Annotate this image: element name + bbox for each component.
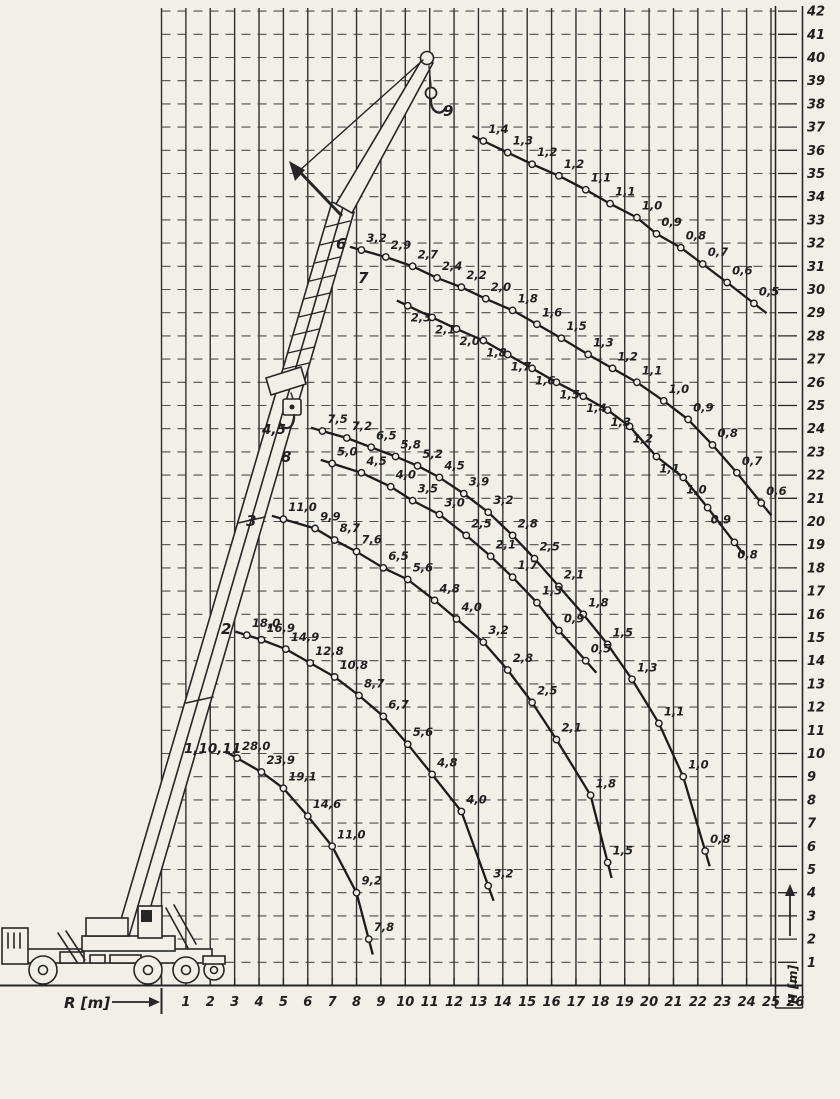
point-load-label: 4,0 — [460, 600, 481, 614]
x-axis-arrow-icon — [112, 988, 162, 1014]
point-load-label: 1,5 — [613, 844, 633, 858]
data-point — [661, 398, 667, 404]
data-point — [329, 460, 335, 466]
point-load-label: 2,1 — [561, 721, 581, 735]
point-load-label: 28,0 — [242, 739, 270, 753]
x-tick-label: 4 — [253, 995, 263, 1010]
data-point — [607, 200, 613, 206]
y-tick-label: 11 — [807, 724, 825, 739]
data-point — [436, 474, 442, 480]
y-tick-label: 33 — [807, 213, 825, 228]
data-point — [556, 627, 562, 633]
data-point — [585, 351, 591, 357]
data-point — [629, 676, 635, 682]
point-load-label: 1,2 — [618, 349, 638, 363]
point-load-label: 2,0 — [459, 334, 479, 348]
data-point — [305, 813, 311, 819]
curve-id-label: 6 — [336, 235, 346, 253]
cab-window — [141, 910, 152, 922]
data-point — [751, 300, 757, 306]
curve-line — [321, 460, 597, 673]
x-tick-label: 12 — [445, 995, 463, 1010]
point-load-label: 5,2 — [422, 447, 442, 461]
y-tick-label: 6 — [807, 840, 816, 855]
point-load-label: 1,1 — [659, 462, 679, 476]
point-load-label: 11,0 — [337, 827, 365, 841]
data-point — [529, 699, 535, 705]
data-point — [280, 785, 286, 791]
x-tick-label: 16 — [543, 995, 561, 1010]
point-load-label: 3,2 — [366, 231, 386, 245]
point-load-label: 2,5 — [540, 540, 560, 554]
point-load-label: 8,7 — [364, 677, 384, 691]
y-tick-label: 13 — [807, 677, 825, 692]
x-tick-label: 1 — [181, 995, 190, 1010]
engine-housing — [86, 918, 128, 936]
x-tick-label: 13 — [469, 995, 487, 1010]
point-load-label: 2,9 — [391, 238, 411, 252]
point-load-label: 14,9 — [291, 630, 319, 644]
data-point — [529, 161, 535, 167]
point-load-label: 4,8 — [436, 755, 457, 769]
y-axis-label: H [m] — [785, 964, 800, 1004]
y-tick-label: 12 — [807, 701, 825, 716]
point-load-label: 1,6 — [535, 373, 555, 387]
data-point — [556, 173, 562, 179]
data-point — [331, 674, 337, 680]
y-tick-label: 14 — [807, 654, 825, 669]
curve-id-label: 4,5 — [261, 422, 286, 438]
point-load-label: 0,8 — [737, 547, 757, 561]
point-load-label: 1,8 — [588, 595, 608, 609]
point-load-label: 2,0 — [491, 280, 511, 294]
x-tick-label: 7 — [328, 995, 338, 1010]
point-load-label: 0,8 — [717, 426, 737, 440]
data-point — [387, 484, 393, 490]
data-point — [436, 511, 442, 517]
curve-id-label: 1,10,11 — [184, 741, 241, 757]
crane-truck — [2, 905, 225, 984]
point-load-label: 0,9 — [661, 215, 681, 229]
data-point — [609, 365, 615, 371]
point-load-label: 1,2 — [537, 145, 557, 159]
point-load-label: 9,2 — [362, 874, 382, 888]
point-load-label: 3,2 — [493, 493, 513, 507]
point-load-label: 11,0 — [288, 500, 316, 514]
point-load-label: 0,9 — [711, 513, 731, 527]
y-tick-label: 38 — [807, 97, 825, 112]
crane-load-chart: 1234567891011121314151617181920212223242… — [0, 0, 840, 1094]
point-load-label: 0,7 — [742, 454, 762, 468]
x-tick-label: 11 — [421, 995, 439, 1010]
x-tick-label: 6 — [303, 995, 312, 1010]
data-point — [504, 667, 510, 673]
data-point — [534, 600, 540, 606]
data-point — [366, 936, 372, 942]
y-axis-arrow-icon — [785, 884, 795, 936]
point-load-label: 7,5 — [327, 412, 347, 426]
point-load-label: 1,8 — [486, 346, 506, 360]
point-load-label: 7,2 — [352, 419, 372, 433]
data-point — [483, 296, 489, 302]
data-point — [358, 247, 364, 253]
point-load-label: 0,9 — [693, 400, 713, 414]
y-tick-label: 34 — [807, 190, 825, 205]
data-point — [405, 303, 411, 309]
data-point — [409, 497, 415, 503]
data-point — [724, 279, 730, 285]
data-point — [504, 149, 510, 155]
data-point — [356, 692, 362, 698]
data-point — [734, 470, 740, 476]
x-tick-label: 9 — [376, 995, 385, 1010]
data-point — [485, 509, 491, 515]
point-load-label: 6,5 — [376, 428, 396, 442]
point-load-label: 1,3 — [637, 660, 657, 674]
data-point — [368, 444, 374, 450]
curve-id-label: 9 — [443, 102, 453, 120]
data-point — [704, 504, 710, 510]
data-point — [307, 660, 313, 666]
curve-id-label: 7 — [358, 269, 369, 287]
point-load-label: 1,4 — [488, 122, 508, 136]
y-tick-label: 39 — [807, 74, 825, 89]
point-load-label: 1,1 — [664, 704, 684, 718]
point-load-label: 3,2 — [488, 623, 508, 637]
data-point — [480, 138, 486, 144]
y-tick-label: 7 — [807, 817, 817, 832]
x-tick-label: 5 — [279, 995, 288, 1010]
y-tick-label: 32 — [807, 237, 825, 252]
point-load-label: 1,7 — [511, 359, 531, 373]
x-tick-label: 18 — [591, 995, 609, 1010]
point-load-label: 0,5 — [759, 284, 779, 298]
capacity-curve-1,10,11: 28,023,919,114,611,09,27,81,10,11 — [184, 739, 394, 954]
y-tick-label: 9 — [807, 770, 816, 785]
data-point — [680, 774, 686, 780]
point-load-label: 4,0 — [465, 793, 486, 807]
y-tick-label: 30 — [807, 283, 825, 298]
data-point — [509, 574, 515, 580]
data-point — [583, 187, 589, 193]
point-load-label: 3,9 — [469, 475, 489, 489]
y-tick-label: 18 — [807, 561, 825, 576]
point-load-label: 8,7 — [340, 521, 360, 535]
curve-line — [397, 301, 744, 555]
point-load-label: 14,6 — [313, 797, 341, 811]
point-load-label: 0,7 — [708, 245, 728, 259]
y-tick-label: 3 — [807, 909, 816, 924]
point-load-label: 2,3 — [411, 311, 431, 325]
jib-tip-pulley — [421, 52, 434, 65]
data-point — [458, 808, 464, 814]
point-load-label: 1,3 — [593, 335, 613, 349]
capacity-curve-8: 5,04,54,03,53,02,52,11,71,30,90,58 — [281, 445, 611, 673]
data-point — [258, 769, 264, 775]
y-tick-label: 31 — [807, 260, 825, 275]
data-point — [353, 548, 359, 554]
y-tick-label: 25 — [807, 399, 825, 414]
crane-drawing — [2, 52, 446, 985]
axes: 1234567891011121314151617181920212223242… — [0, 5, 826, 1010]
curve-id-label: 3 — [246, 512, 256, 530]
data-point — [558, 335, 564, 341]
point-load-label: 0,5 — [591, 642, 611, 656]
point-load-label: 5,6 — [413, 725, 433, 739]
data-point — [244, 632, 250, 638]
x-tick-label: 17 — [567, 995, 586, 1010]
data-point — [509, 307, 515, 313]
crane-jib — [289, 52, 434, 216]
data-point — [319, 428, 325, 434]
point-load-label: 4,8 — [439, 581, 460, 595]
data-point — [709, 442, 715, 448]
capacity-curve-3: 11,09,98,77,66,55,64,84,03,22,82,52,11,8… — [246, 500, 633, 878]
x-tick-label: 20 — [640, 995, 658, 1010]
y-tick-label: 23 — [807, 445, 825, 460]
y-tick-label: 1 — [807, 956, 816, 971]
point-load-label: 2,5 — [537, 683, 557, 697]
data-point — [344, 435, 350, 441]
y-tick-label: 21 — [807, 492, 825, 507]
point-load-label: 10,8 — [340, 658, 368, 672]
y-tick-label: 15 — [807, 631, 825, 646]
y-tick-label: 22 — [807, 469, 825, 484]
y-tick-label: 8 — [807, 793, 816, 808]
point-load-label: 1,2 — [564, 157, 584, 171]
jib-arrow-icon — [289, 161, 305, 181]
point-load-label: 0,6 — [732, 264, 752, 278]
capacity-curve-2: 18,016,914,912,810,88,76,75,64,84,03,22 — [221, 616, 514, 901]
crane-boom — [112, 202, 354, 950]
data-point — [656, 720, 662, 726]
capacity-curves: 1,41,31,21,21,11,11,00,90,80,70,60,593,2… — [184, 102, 787, 955]
x-tick-label: 15 — [518, 995, 536, 1010]
data-point — [358, 470, 364, 476]
point-load-label: 1,5 — [613, 625, 633, 639]
x-tick-label: 24 — [738, 995, 756, 1010]
y-tick-label: 36 — [807, 144, 825, 159]
data-point — [604, 859, 610, 865]
curve-line — [272, 516, 612, 878]
point-load-label: 1,3 — [611, 415, 631, 429]
data-point — [258, 637, 264, 643]
data-point — [331, 537, 337, 543]
point-load-label: 7,8 — [374, 920, 394, 934]
curve-id-label: 2 — [221, 620, 231, 638]
data-point — [392, 453, 398, 459]
point-load-label: 1,3 — [542, 584, 562, 598]
point-load-label: 1,1 — [591, 171, 611, 185]
y-tick-label: 2 — [807, 933, 816, 948]
point-load-label: 2,8 — [513, 651, 533, 665]
point-load-label: 4,5 — [443, 458, 464, 472]
data-point — [434, 275, 440, 281]
point-load-label: 0,6 — [766, 484, 786, 498]
data-point — [405, 576, 411, 582]
point-load-label: 1,8 — [518, 291, 538, 305]
point-load-label: 1,1 — [615, 185, 635, 199]
point-load-label: 0,8 — [710, 832, 730, 846]
data-point — [280, 516, 286, 522]
point-load-label: 2,2 — [466, 268, 486, 282]
y-tick-label: 40 — [806, 51, 825, 66]
y-tick-label: 37 — [807, 121, 826, 136]
x-tick-label: 2 — [206, 995, 215, 1010]
data-point — [553, 736, 559, 742]
x-axis-label: R [m] — [64, 994, 110, 1012]
data-point — [702, 848, 708, 854]
point-load-label: 1,4 — [586, 401, 606, 415]
data-point — [634, 379, 640, 385]
data-point — [431, 597, 437, 603]
point-load-label: 19,1 — [288, 769, 316, 783]
data-point — [380, 713, 386, 719]
data-point — [685, 416, 691, 422]
point-load-label: 1,3 — [513, 134, 533, 148]
data-point — [463, 532, 469, 538]
x-tick-label: 22 — [689, 995, 707, 1010]
point-load-label: 9,9 — [320, 509, 340, 523]
data-point — [758, 500, 764, 506]
data-point — [409, 263, 415, 269]
point-load-label: 3,5 — [418, 482, 438, 496]
data-point — [453, 616, 459, 622]
y-tick-label: 5 — [807, 863, 816, 878]
x-tick-label: 19 — [616, 995, 634, 1010]
x-tick-label: 8 — [352, 995, 361, 1010]
data-point — [487, 553, 493, 559]
x-tick-label: 10 — [396, 995, 414, 1010]
data-point — [583, 658, 589, 664]
data-point — [634, 214, 640, 220]
point-load-label: 2,8 — [518, 516, 538, 530]
data-point — [329, 843, 335, 849]
point-load-label: 1,5 — [559, 387, 579, 401]
x-tick-label: 21 — [664, 995, 682, 1010]
data-point — [580, 393, 586, 399]
data-point — [480, 337, 486, 343]
point-load-label: 12,8 — [315, 644, 343, 658]
point-load-label: 2,1 — [496, 537, 516, 551]
point-load-label: 6,7 — [388, 697, 408, 711]
data-point — [678, 245, 684, 251]
y-tick-label: 35 — [807, 167, 825, 182]
point-load-label: 6,5 — [388, 549, 408, 563]
data-point — [383, 254, 389, 260]
point-load-label: 1,5 — [566, 319, 586, 333]
point-load-label: 7,6 — [362, 533, 382, 547]
y-tick-label: 4 — [806, 886, 816, 901]
point-load-label: 2,1 — [435, 322, 455, 336]
y-tick-label: 24 — [807, 422, 825, 437]
y-tick-label: 19 — [807, 538, 825, 553]
y-tick-label: 28 — [807, 329, 825, 344]
point-load-label: 1,2 — [633, 431, 653, 445]
point-load-label: 1,1 — [642, 363, 662, 377]
y-tick-label: 26 — [807, 376, 825, 391]
y-tick-label: 16 — [807, 608, 825, 623]
truck-cab — [2, 928, 28, 964]
point-load-label: 1,7 — [518, 558, 538, 572]
point-load-label: 3,0 — [444, 496, 464, 510]
y-tick-label: 42 — [806, 5, 825, 20]
data-point — [587, 792, 593, 798]
point-load-label: 4,5 — [365, 454, 386, 468]
point-load-label: 3,2 — [493, 867, 513, 881]
data-point — [405, 741, 411, 747]
data-point — [312, 525, 318, 531]
y-tick-label: 27 — [807, 353, 826, 368]
data-point — [458, 284, 464, 290]
point-load-label: 23,9 — [266, 753, 294, 767]
point-load-label: 2,4 — [442, 259, 462, 273]
data-point — [429, 771, 435, 777]
x-tick-label: 3 — [230, 995, 239, 1010]
data-point — [534, 321, 540, 327]
y-tick-label: 20 — [807, 515, 825, 530]
point-load-label: 5,0 — [337, 445, 357, 459]
point-load-label: 2,7 — [418, 247, 438, 261]
point-load-label: 4,0 — [395, 468, 416, 482]
data-point — [480, 639, 486, 645]
point-load-label: 1,0 — [669, 382, 689, 396]
point-load-label: 1,6 — [542, 305, 562, 319]
data-point — [653, 453, 659, 459]
point-load-label: 1,0 — [688, 758, 708, 772]
data-point — [700, 261, 706, 267]
data-point — [653, 231, 659, 237]
point-load-label: 0,9 — [564, 612, 584, 626]
y-tick-label: 10 — [807, 747, 825, 762]
data-point — [380, 565, 386, 571]
point-load-label: 1,0 — [686, 482, 706, 496]
data-point — [283, 646, 289, 652]
data-point — [353, 890, 359, 896]
x-tick-label: 23 — [713, 995, 731, 1010]
point-load-label: 1,8 — [596, 776, 616, 790]
curve-id-label: 8 — [281, 448, 291, 466]
point-load-label: 2,5 — [471, 516, 491, 530]
point-load-label: 0,8 — [686, 229, 706, 243]
x-tick-label: 25 — [762, 995, 780, 1010]
point-load-label: 5,8 — [401, 438, 421, 452]
y-tick-label: 41 — [806, 28, 825, 43]
data-point — [731, 539, 737, 545]
data-point — [485, 883, 491, 889]
y-tick-label: 17 — [807, 585, 826, 600]
data-point — [680, 474, 686, 480]
point-load-label: 2,1 — [564, 567, 584, 581]
point-load-label: 1,0 — [642, 199, 662, 213]
x-tick-label: 14 — [494, 995, 512, 1010]
y-tick-label: 29 — [807, 306, 825, 321]
point-load-label: 5,6 — [413, 561, 433, 575]
